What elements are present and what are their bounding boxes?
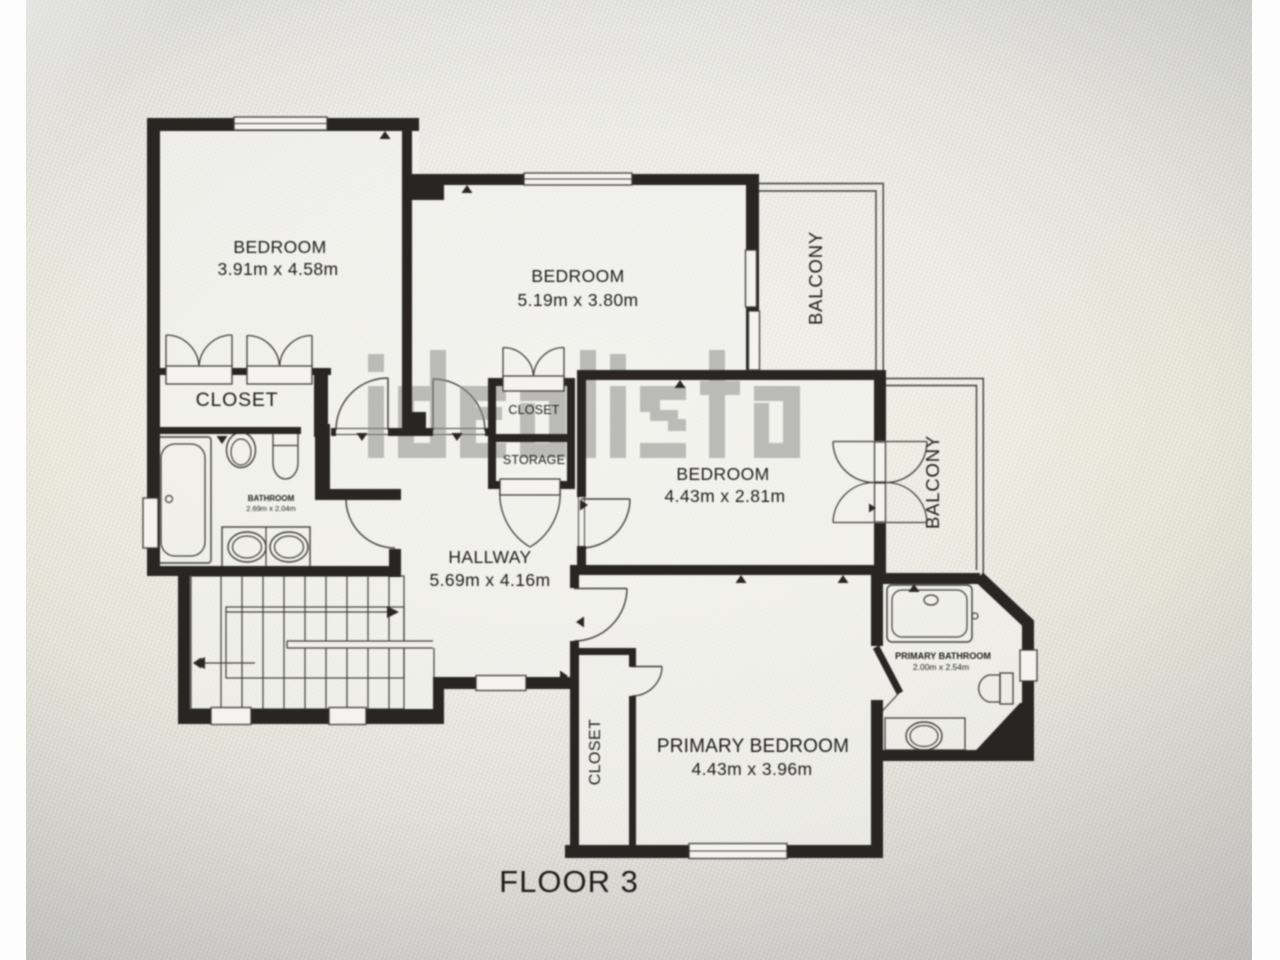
svg-text:BALCONY: BALCONY: [922, 435, 943, 529]
svg-text:HALLWAY: HALLWAY: [448, 547, 531, 567]
svg-text:STORAGE: STORAGE: [503, 453, 565, 467]
svg-text:FLOOR 3: FLOOR 3: [499, 864, 639, 899]
svg-text:CLOSET: CLOSET: [196, 389, 279, 411]
svg-text:4.43m x 3.96m: 4.43m x 3.96m: [692, 759, 813, 779]
svg-text:BEDROOM: BEDROOM: [531, 266, 624, 286]
svg-text:2.00m x 2.54m: 2.00m x 2.54m: [913, 662, 969, 672]
svg-text:BALCONY: BALCONY: [805, 231, 826, 325]
svg-text:5.19m x 3.80m: 5.19m x 3.80m: [518, 290, 639, 310]
svg-text:BEDROOM: BEDROOM: [676, 464, 769, 484]
svg-text:PRIMARY BEDROOM: PRIMARY BEDROOM: [657, 736, 849, 757]
svg-text:BATHROOM: BATHROOM: [248, 494, 295, 503]
svg-text:BEDROOM: BEDROOM: [233, 237, 326, 257]
svg-text:CLOSET: CLOSET: [587, 719, 604, 785]
svg-text:5.69m x 4.16m: 5.69m x 4.16m: [430, 570, 551, 590]
svg-text:4.43m x 2.81m: 4.43m x 2.81m: [665, 486, 786, 506]
svg-text:2.69m x 2.04m: 2.69m x 2.04m: [246, 504, 296, 513]
svg-text:PRIMARY BATHROOM: PRIMARY BATHROOM: [895, 651, 991, 661]
svg-text:3.91m x 4.58m: 3.91m x 4.58m: [218, 259, 339, 279]
svg-text:CLOSET: CLOSET: [508, 403, 559, 417]
